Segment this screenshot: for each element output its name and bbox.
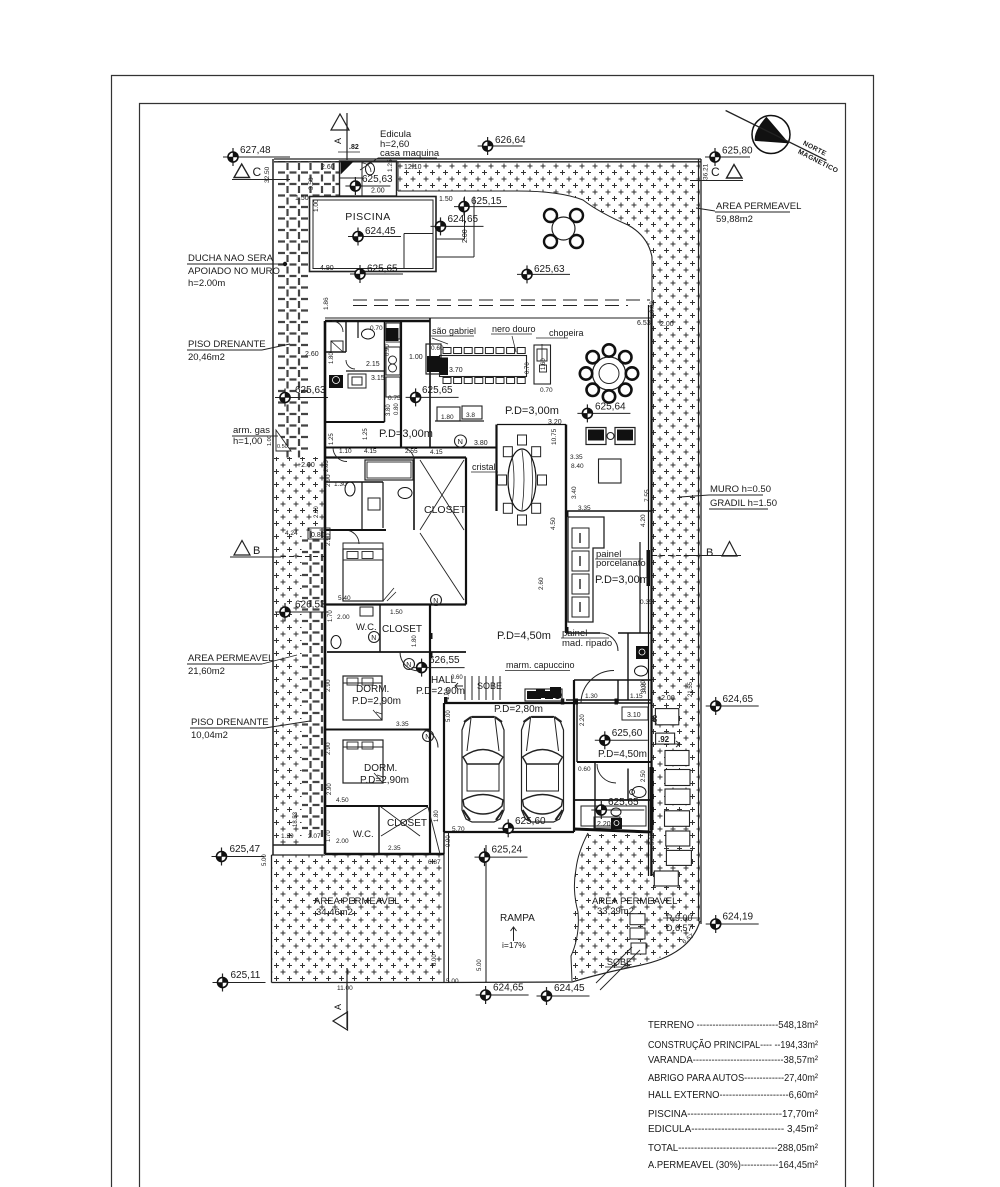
svg-text:10,04m2: 10,04m2 bbox=[191, 730, 228, 741]
svg-text:5.00: 5.00 bbox=[650, 833, 656, 845]
svg-text:1.80: 1.80 bbox=[434, 810, 440, 822]
svg-text:GRADIL h=1.50: GRADIL h=1.50 bbox=[710, 498, 777, 509]
svg-text:PISO DRENANTE: PISO DRENANTE bbox=[191, 717, 269, 728]
svg-text:P.D=2,90m: P.D=2,90m bbox=[416, 686, 465, 697]
svg-text:59,88m2: 59,88m2 bbox=[716, 214, 753, 225]
svg-text:C: C bbox=[711, 165, 720, 179]
svg-text:CONSTRUÇÃO PRINCIPAL---- --194: CONSTRUÇÃO PRINCIPAL---- --194,33m² bbox=[648, 1038, 818, 1051]
svg-text:5.00: 5.00 bbox=[446, 710, 452, 722]
svg-text:2.65: 2.65 bbox=[324, 460, 330, 472]
svg-text:11.00: 11.00 bbox=[337, 985, 353, 992]
svg-text:0.70: 0.70 bbox=[540, 387, 553, 394]
svg-text:4.24: 4.24 bbox=[285, 530, 298, 537]
svg-text:0.90: 0.90 bbox=[385, 344, 391, 356]
svg-text:2.35: 2.35 bbox=[388, 845, 401, 852]
svg-text:3.8: 3.8 bbox=[466, 412, 475, 419]
svg-text:4.50: 4.50 bbox=[550, 517, 557, 530]
svg-text:A.PERMEAVEL (30%)------------1: A.PERMEAVEL (30%)------------164,45m² bbox=[648, 1159, 818, 1171]
svg-text:0.35: 0.35 bbox=[640, 599, 653, 606]
svg-text:.82: .82 bbox=[349, 144, 359, 151]
svg-text:6.87: 6.87 bbox=[428, 859, 441, 866]
svg-text:N: N bbox=[425, 734, 430, 741]
svg-text:5.40: 5.40 bbox=[338, 595, 351, 602]
svg-text:3.15: 3.15 bbox=[371, 375, 385, 382]
svg-text:624,45: 624,45 bbox=[365, 226, 396, 237]
svg-text:1.25: 1.25 bbox=[363, 428, 369, 440]
svg-text:B: B bbox=[706, 547, 713, 559]
svg-text:3.35: 3.35 bbox=[570, 454, 583, 461]
svg-text:3.20: 3.20 bbox=[548, 419, 562, 426]
svg-text:+2.00: +2.00 bbox=[657, 695, 675, 702]
svg-text:1.30: 1.30 bbox=[585, 693, 598, 700]
svg-text:1.50: 1.50 bbox=[439, 196, 453, 203]
svg-text:CLOSET: CLOSET bbox=[382, 624, 422, 635]
svg-text:4.50: 4.50 bbox=[336, 797, 349, 804]
svg-text:P.D=3,00m: P.D=3,00m bbox=[595, 574, 649, 586]
svg-text:1.00: 1.00 bbox=[267, 435, 273, 446]
svg-text:P.D=4,50m: P.D=4,50m bbox=[598, 749, 647, 760]
svg-text:21.55: 21.55 bbox=[688, 681, 694, 697]
svg-text:TERRENO ----------------------: TERRENO --------------------------548,18… bbox=[648, 1019, 818, 1031]
svg-text:12.10: 12.10 bbox=[404, 164, 422, 171]
svg-text:626,55: 626,55 bbox=[429, 655, 460, 666]
svg-text:625,60: 625,60 bbox=[612, 728, 643, 739]
svg-text:mad. ripado: mad. ripado bbox=[562, 638, 612, 649]
svg-text:4.15: 4.15 bbox=[364, 448, 377, 455]
svg-text:624,19: 624,19 bbox=[723, 912, 754, 923]
svg-text:2.60: 2.60 bbox=[321, 164, 335, 171]
svg-text:+2.00: +2.00 bbox=[297, 462, 315, 469]
svg-text:AREA PERMEAVEL: AREA PERMEAVEL bbox=[188, 653, 273, 664]
svg-text:1.60: 1.60 bbox=[541, 358, 547, 370]
svg-text:1.70: 1.70 bbox=[326, 830, 332, 842]
svg-text:3.35: 3.35 bbox=[578, 505, 591, 512]
svg-text:3.10: 3.10 bbox=[627, 712, 641, 719]
svg-text:625,63: 625,63 bbox=[362, 174, 393, 185]
svg-text:N: N bbox=[458, 437, 463, 446]
svg-text:PISCINA: PISCINA bbox=[345, 211, 391, 223]
svg-text:marm. capuccino: marm. capuccino bbox=[506, 660, 575, 670]
svg-text:2.60: 2.60 bbox=[305, 351, 319, 358]
svg-text:N: N bbox=[433, 598, 438, 605]
svg-text:MURO h=0.50: MURO h=0.50 bbox=[710, 484, 771, 495]
svg-text:1.80: 1.80 bbox=[329, 352, 335, 364]
svg-text:SOBE: SOBE bbox=[477, 681, 502, 691]
svg-text:2.90: 2.90 bbox=[325, 474, 332, 487]
svg-text:625,80: 625,80 bbox=[722, 146, 753, 157]
svg-text:36.21: 36.21 bbox=[703, 163, 710, 180]
svg-text:2.90: 2.90 bbox=[325, 679, 332, 692]
svg-text:AREA PERMEAVEL: AREA PERMEAVEL bbox=[716, 201, 801, 212]
svg-text:4.90: 4.90 bbox=[320, 265, 334, 272]
svg-text:P.D=2,90m: P.D=2,90m bbox=[352, 696, 401, 707]
svg-text:B: B bbox=[253, 545, 260, 557]
svg-text:2.55: 2.55 bbox=[405, 448, 418, 455]
svg-text:2.90: 2.90 bbox=[327, 783, 333, 795]
svg-text:0.70: 0.70 bbox=[525, 362, 531, 374]
svg-text:C: C bbox=[253, 165, 262, 179]
svg-text:N: N bbox=[371, 635, 376, 642]
svg-text:3.35: 3.35 bbox=[396, 721, 409, 728]
svg-text:2.50: 2.50 bbox=[641, 770, 647, 782]
svg-text:624,65: 624,65 bbox=[493, 983, 524, 994]
svg-text:33,29m2: 33,29m2 bbox=[597, 906, 634, 917]
svg-text:625,65: 625,65 bbox=[422, 385, 453, 396]
svg-text:7.55: 7.55 bbox=[644, 489, 651, 502]
svg-text:W.C.: W.C. bbox=[353, 829, 374, 840]
svg-text:5.00: 5.00 bbox=[262, 854, 268, 866]
svg-text:0.60: 0.60 bbox=[451, 675, 463, 681]
svg-text:2.00: 2.00 bbox=[462, 229, 469, 243]
svg-text:5.70: 5.70 bbox=[452, 826, 465, 833]
svg-text:3.00: 3.00 bbox=[641, 680, 647, 692]
svg-text:3.80: 3.80 bbox=[474, 440, 488, 447]
svg-text:2.20: 2.20 bbox=[580, 714, 586, 726]
svg-text:21,60m2: 21,60m2 bbox=[188, 666, 225, 677]
svg-text:P.D=4,50m: P.D=4,50m bbox=[497, 630, 551, 642]
svg-text:1.00: 1.00 bbox=[313, 199, 320, 212]
svg-text:TOTAL-------------------------: TOTAL-------------------------------288,… bbox=[648, 1142, 818, 1154]
svg-text:1.25: 1.25 bbox=[387, 159, 394, 172]
svg-text:A: A bbox=[333, 1004, 343, 1010]
svg-text:2.20: 2.20 bbox=[597, 821, 611, 828]
svg-text:i=17%: i=17% bbox=[502, 940, 526, 950]
svg-text:625,63: 625,63 bbox=[295, 385, 326, 396]
svg-text:624,65: 624,65 bbox=[723, 694, 754, 705]
svg-text:625,64: 625,64 bbox=[595, 402, 626, 413]
svg-text:nero douro: nero douro bbox=[492, 324, 536, 334]
svg-text:2.15: 2.15 bbox=[366, 361, 380, 368]
svg-text:P.D=3,00m: P.D=3,00m bbox=[379, 428, 433, 440]
svg-text:8.40: 8.40 bbox=[571, 463, 584, 470]
svg-text:P.D=2,80m: P.D=2,80m bbox=[494, 704, 543, 715]
svg-text:porcelanato: porcelanato bbox=[596, 558, 646, 569]
svg-text:2.90: 2.90 bbox=[325, 533, 332, 546]
svg-text:DORM.: DORM. bbox=[364, 763, 397, 774]
svg-text:0.60: 0.60 bbox=[431, 345, 444, 352]
svg-text:625,63: 625,63 bbox=[534, 264, 565, 275]
svg-text:P.D=3,00m: P.D=3,00m bbox=[505, 405, 559, 417]
svg-text:A: A bbox=[333, 138, 343, 144]
svg-text:AREA PERMEAVEL: AREA PERMEAVEL bbox=[314, 896, 399, 907]
svg-text:.60: .60 bbox=[652, 715, 659, 724]
svg-text:D.6,57: D.6,57 bbox=[666, 923, 693, 933]
svg-text:casa maquina: casa maquina bbox=[380, 148, 440, 159]
svg-text:ABRIGO PARA AUTOS-------------: ABRIGO PARA AUTOS-------------27,40m² bbox=[648, 1072, 818, 1084]
svg-text:2.07: 2.07 bbox=[308, 833, 321, 840]
svg-text:0.80: 0.80 bbox=[311, 532, 325, 539]
svg-text:VARANDA-----------------------: VARANDA-----------------------------38,5… bbox=[648, 1054, 818, 1066]
svg-text:são gabriel: são gabriel bbox=[432, 326, 476, 336]
svg-text:APOIADO NO MURO: APOIADO NO MURO bbox=[188, 266, 280, 277]
svg-text:cristal: cristal bbox=[472, 462, 496, 472]
svg-text:0.80: 0.80 bbox=[394, 403, 400, 415]
svg-text:arm. gas: arm. gas bbox=[233, 425, 270, 436]
svg-text:1.10: 1.10 bbox=[339, 448, 352, 455]
svg-text:2.00: 2.00 bbox=[337, 614, 350, 621]
svg-text:625,24: 625,24 bbox=[492, 845, 523, 856]
svg-text:1.30: 1.30 bbox=[334, 481, 347, 488]
svg-text:h=1,00: h=1,00 bbox=[233, 436, 262, 447]
svg-text:1.80: 1.80 bbox=[441, 414, 454, 421]
svg-text:1.29: 1.29 bbox=[281, 833, 294, 840]
svg-text:2.00: 2.00 bbox=[660, 321, 674, 328]
svg-text:624,45: 624,45 bbox=[554, 983, 585, 994]
svg-text:624,65: 624,65 bbox=[448, 214, 479, 225]
svg-text:627,48: 627,48 bbox=[240, 145, 271, 156]
svg-text:1.15: 1.15 bbox=[630, 693, 643, 700]
svg-text:1.50: 1.50 bbox=[295, 195, 309, 202]
svg-text:HALL EXTERNO------------------: HALL EXTERNO----------------------6,60m² bbox=[648, 1089, 818, 1101]
svg-text:3.40: 3.40 bbox=[571, 486, 578, 499]
svg-text:h=2.00m: h=2.00m bbox=[188, 278, 225, 289]
svg-text:0.70: 0.70 bbox=[370, 325, 383, 332]
svg-text:625,60: 625,60 bbox=[515, 816, 546, 827]
svg-text:2.00: 2.00 bbox=[371, 188, 385, 195]
svg-text:.92: .92 bbox=[658, 735, 670, 744]
svg-text:0.75: 0.75 bbox=[388, 395, 401, 402]
svg-text:1.50: 1.50 bbox=[390, 609, 403, 616]
svg-text:5.00: 5.00 bbox=[432, 954, 438, 966]
svg-text:20,46m2: 20,46m2 bbox=[188, 352, 225, 363]
svg-text:626,53: 626,53 bbox=[295, 600, 326, 611]
svg-text:1.70: 1.70 bbox=[328, 610, 334, 622]
svg-text:EDICULA-----------------------: EDICULA---------------------------- 3,45… bbox=[648, 1123, 818, 1135]
svg-text:625,65: 625,65 bbox=[367, 264, 398, 275]
svg-text:DORM.: DORM. bbox=[356, 684, 389, 695]
svg-text:625,47: 625,47 bbox=[230, 844, 261, 855]
svg-text:0.60: 0.60 bbox=[578, 766, 591, 773]
svg-text:2.00: 2.00 bbox=[336, 838, 349, 845]
svg-text:5.00: 5.00 bbox=[477, 959, 483, 971]
svg-text:625,11: 625,11 bbox=[231, 970, 261, 981]
svg-text:RAMPA: RAMPA bbox=[500, 913, 535, 924]
svg-text:3.80: 3.80 bbox=[386, 404, 392, 416]
svg-text:0.50: 0.50 bbox=[277, 444, 288, 450]
svg-text:PISCINA-----------------------: PISCINA-----------------------------17,7… bbox=[648, 1108, 818, 1120]
svg-text:4.20: 4.20 bbox=[640, 514, 647, 527]
svg-text:3.50: 3.50 bbox=[308, 177, 315, 190]
svg-text:4.15: 4.15 bbox=[430, 449, 443, 456]
svg-text:chopeira: chopeira bbox=[549, 328, 584, 338]
svg-text:1.25: 1.25 bbox=[329, 433, 335, 445]
svg-text:N: N bbox=[406, 662, 411, 669]
svg-text:DUCHA NAO SERA: DUCHA NAO SERA bbox=[188, 253, 274, 264]
svg-text:625,65: 625,65 bbox=[608, 797, 639, 808]
svg-text:P.D=2,90m: P.D=2,90m bbox=[360, 775, 409, 786]
svg-text:1.00: 1.00 bbox=[409, 354, 423, 361]
svg-text:18.53: 18.53 bbox=[293, 811, 299, 827]
svg-text:2.60: 2.60 bbox=[538, 577, 545, 590]
svg-text:626,64: 626,64 bbox=[495, 135, 526, 146]
svg-text:10.75: 10.75 bbox=[551, 428, 558, 445]
svg-text:625,15: 625,15 bbox=[471, 196, 502, 207]
svg-text:1.80: 1.80 bbox=[412, 635, 418, 647]
svg-text:34,46m2: 34,46m2 bbox=[316, 907, 353, 918]
svg-text:PISO DRENANTE: PISO DRENANTE bbox=[188, 339, 266, 350]
svg-text:3.70: 3.70 bbox=[449, 367, 463, 374]
svg-text:5.00: 5.00 bbox=[446, 978, 459, 985]
svg-text:1.00: 1.00 bbox=[445, 688, 451, 700]
svg-text:32.50: 32.50 bbox=[264, 166, 271, 183]
svg-text:2.80: 2.80 bbox=[314, 506, 320, 518]
svg-text:2.90: 2.90 bbox=[325, 742, 332, 755]
svg-text:1.86: 1.86 bbox=[323, 297, 330, 310]
